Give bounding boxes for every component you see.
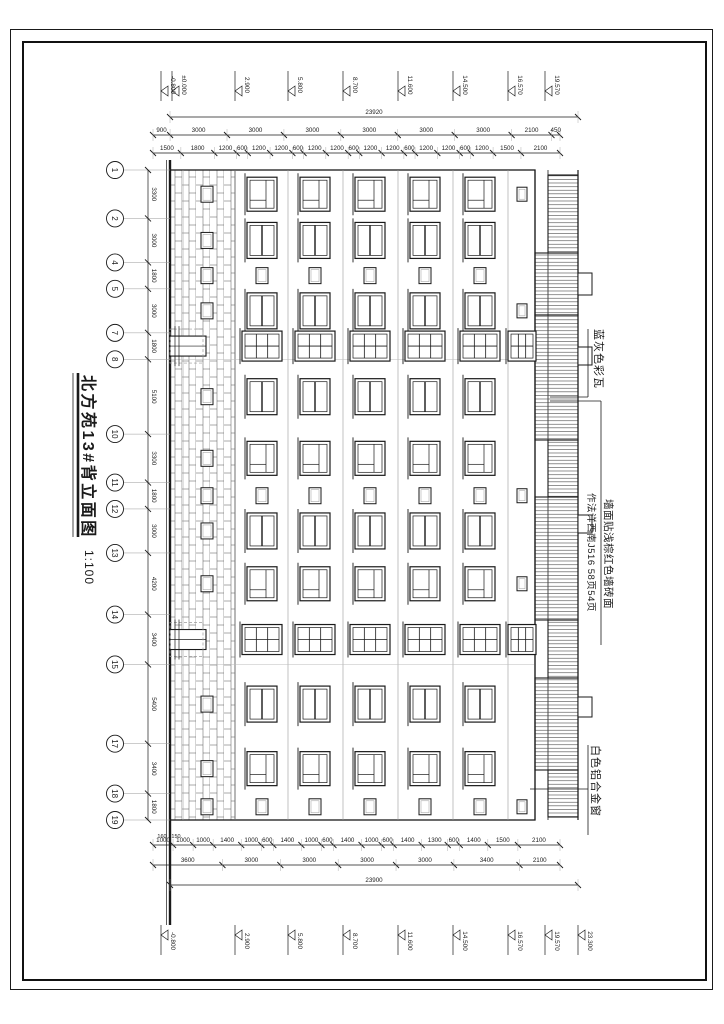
svg-text:160: 160 [157,834,166,840]
svg-text:3000: 3000 [249,127,263,134]
svg-text:1200: 1200 [274,145,288,152]
svg-text:1400: 1400 [467,837,481,844]
dim-left-total: 23920 [167,109,581,123]
svg-text:2.900: 2.900 [243,933,250,949]
svg-text:600: 600 [237,145,248,152]
svg-text:1800: 1800 [150,339,157,353]
svg-text:1200: 1200 [252,145,266,152]
annotation-wall-finish-ref: 作法详西南J516 58页54页 [585,493,599,612]
svg-text:3000: 3000 [419,127,433,134]
elevation-drawing: 1500180012006001200120060012001200600120… [30,45,700,980]
svg-text:5: 5 [110,287,119,292]
svg-text:4200: 4200 [150,577,157,591]
svg-text:1000: 1000 [365,837,379,844]
annotation-window-type: 白色铝合金窗 [588,745,604,817]
svg-text:-0.800: -0.800 [169,932,176,951]
svg-text:3000: 3000 [418,857,432,864]
svg-text:3400: 3400 [150,633,157,647]
svg-text:600: 600 [404,145,415,152]
svg-text:1300: 1300 [428,837,442,844]
svg-text:2100: 2100 [532,837,546,844]
svg-text:16.570: 16.570 [516,931,523,951]
svg-text:3400: 3400 [150,762,157,776]
svg-text:1200: 1200 [308,145,322,152]
svg-text:14.500: 14.500 [461,931,468,951]
svg-text:3000: 3000 [476,127,490,134]
svg-text:23900: 23900 [365,877,383,884]
svg-text:3000: 3000 [150,524,157,538]
svg-text:3300: 3300 [150,187,157,201]
svg-text:1800: 1800 [150,269,157,283]
svg-text:1500: 1500 [500,145,514,152]
svg-text:14.500: 14.500 [461,75,468,95]
dim-right-total: 23900 [167,877,581,891]
svg-text:2: 2 [110,216,119,221]
svg-text:2100: 2100 [525,127,539,134]
svg-text:600: 600 [262,837,273,844]
svg-text:11.600: 11.600 [406,75,413,95]
svg-text:1800: 1800 [150,800,157,814]
svg-text:5.800: 5.800 [296,77,303,93]
roof [535,170,592,820]
dim-left-floor: 9003000300030003000300030002100450 [150,127,563,141]
svg-text:13: 13 [110,549,119,558]
svg-text:5400: 5400 [150,697,157,711]
svg-text:±0.000: ±0.000 [180,75,187,95]
svg-text:150: 150 [171,834,180,840]
svg-text:12: 12 [110,504,119,513]
drawing-sheet-page: 1500180012006001200120060012001200600120… [0,0,724,1024]
svg-text:2100: 2100 [533,857,547,864]
svg-text:3000: 3000 [360,857,374,864]
dim-left-detail: 1500180012006001200120060012001200600120… [150,145,563,159]
svg-text:3000: 3000 [150,234,157,248]
svg-text:3000: 3000 [362,127,376,134]
svg-text:7: 7 [110,331,119,336]
svg-text:1200: 1200 [419,145,433,152]
svg-text:16.570: 16.570 [516,75,523,95]
svg-text:8.700: 8.700 [351,77,358,93]
drawing-scale: 1:100 [82,550,96,585]
svg-text:11.600: 11.600 [406,931,413,951]
svg-text:11: 11 [110,478,119,487]
svg-text:10: 10 [110,430,119,439]
svg-text:8.700: 8.700 [351,933,358,949]
svg-text:4: 4 [110,260,119,265]
svg-text:1000: 1000 [196,837,210,844]
dim-right-group: 3600300030003000300034002100 [150,857,563,871]
svg-text:600: 600 [322,837,333,844]
svg-text:1200: 1200 [364,145,378,152]
svg-text:600: 600 [349,145,360,152]
svg-text:2.900: 2.900 [243,77,250,93]
axis-grid: 3300300018003000180051003300180030004200… [107,162,171,829]
drawing-title: 北方苑13#背立面图 [78,375,102,539]
svg-text:2100: 2100 [534,145,548,152]
svg-text:3300: 3300 [150,451,157,465]
svg-text:1400: 1400 [220,837,234,844]
svg-text:1800: 1800 [191,145,205,152]
svg-text:19.570: 19.570 [553,931,560,951]
svg-text:3000: 3000 [302,857,316,864]
levels-right: -0.8002.9005.8008.70011.60014.50016.5701… [161,925,593,955]
svg-text:5.800: 5.800 [296,933,303,949]
svg-text:900: 900 [156,127,167,134]
svg-text:1200: 1200 [475,145,489,152]
svg-text:17: 17 [110,739,119,748]
svg-text:15: 15 [110,660,119,669]
svg-text:1000: 1000 [305,837,319,844]
svg-text:3600: 3600 [181,857,195,864]
svg-text:14: 14 [110,610,119,619]
svg-text:1400: 1400 [280,837,294,844]
levels-left: -0.800±0.0002.9005.8008.70011.60014.5001… [161,71,560,101]
svg-text:1200: 1200 [330,145,344,152]
svg-text:1200: 1200 [219,145,233,152]
svg-text:19: 19 [110,816,119,825]
svg-text:600: 600 [382,837,393,844]
svg-text:1500: 1500 [496,837,510,844]
svg-text:1800: 1800 [150,489,157,503]
svg-text:1: 1 [110,168,119,173]
svg-text:23.300: 23.300 [586,931,593,951]
svg-text:1400: 1400 [341,837,355,844]
svg-text:600: 600 [449,837,460,844]
svg-text:3000: 3000 [150,304,157,318]
svg-text:450: 450 [551,127,562,134]
annotation-roof-tile: 蓝灰色彩瓦 [591,329,607,389]
annotation-wall-finish: 墙面贴浅棕红色墙砖面 [601,499,616,609]
svg-text:1500: 1500 [160,145,174,152]
svg-text:5100: 5100 [150,390,157,404]
svg-text:3000: 3000 [192,127,206,134]
svg-text:3000: 3000 [244,857,258,864]
svg-text:600: 600 [460,145,471,152]
dim-right-detail: 1000100010001400100060014001000600140010… [150,837,563,851]
svg-text:1200: 1200 [386,145,400,152]
svg-text:1000: 1000 [244,837,258,844]
svg-text:1400: 1400 [401,837,415,844]
svg-text:8: 8 [110,357,119,362]
svg-text:19.570: 19.570 [553,75,560,95]
svg-text:23920: 23920 [365,109,383,116]
svg-text:1200: 1200 [442,145,456,152]
svg-text:3000: 3000 [306,127,320,134]
svg-text:18: 18 [110,789,119,798]
rotated-drawing-area: 1500180012006001200120060012001200600120… [30,45,700,980]
svg-text:600: 600 [293,145,304,152]
svg-text:3400: 3400 [480,857,494,864]
